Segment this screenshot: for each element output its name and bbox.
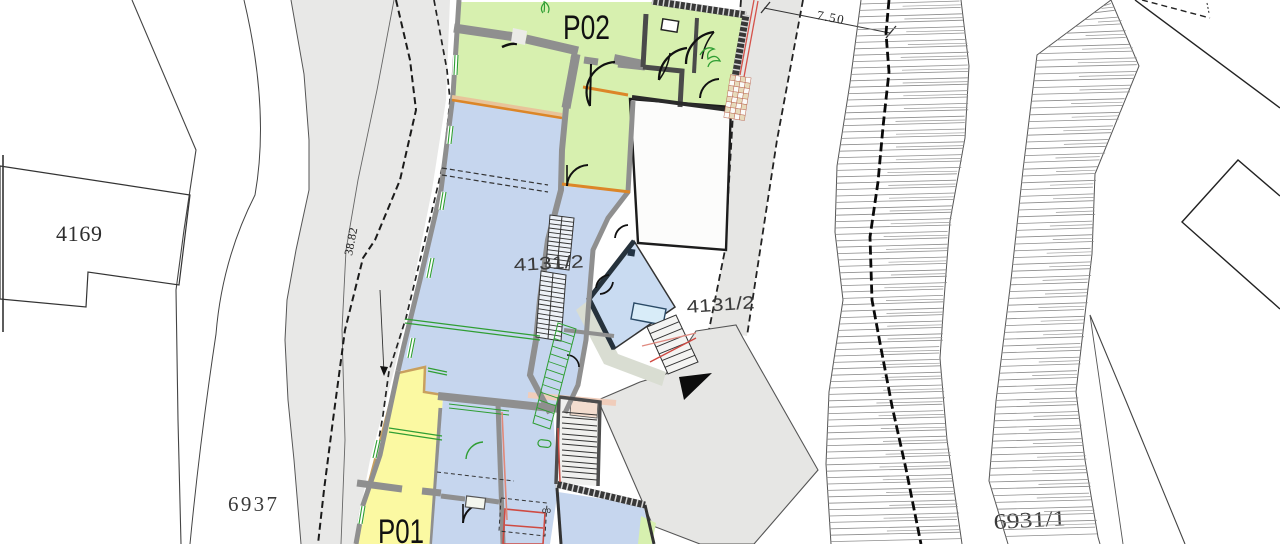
svg-text:P01: P01 <box>378 513 424 544</box>
svg-text:P02: P02 <box>563 9 610 47</box>
svg-text:6937: 6937 <box>228 492 278 516</box>
svg-text:4169: 4169 <box>56 221 104 246</box>
svg-text:4131/2: 4131/2 <box>513 251 584 275</box>
